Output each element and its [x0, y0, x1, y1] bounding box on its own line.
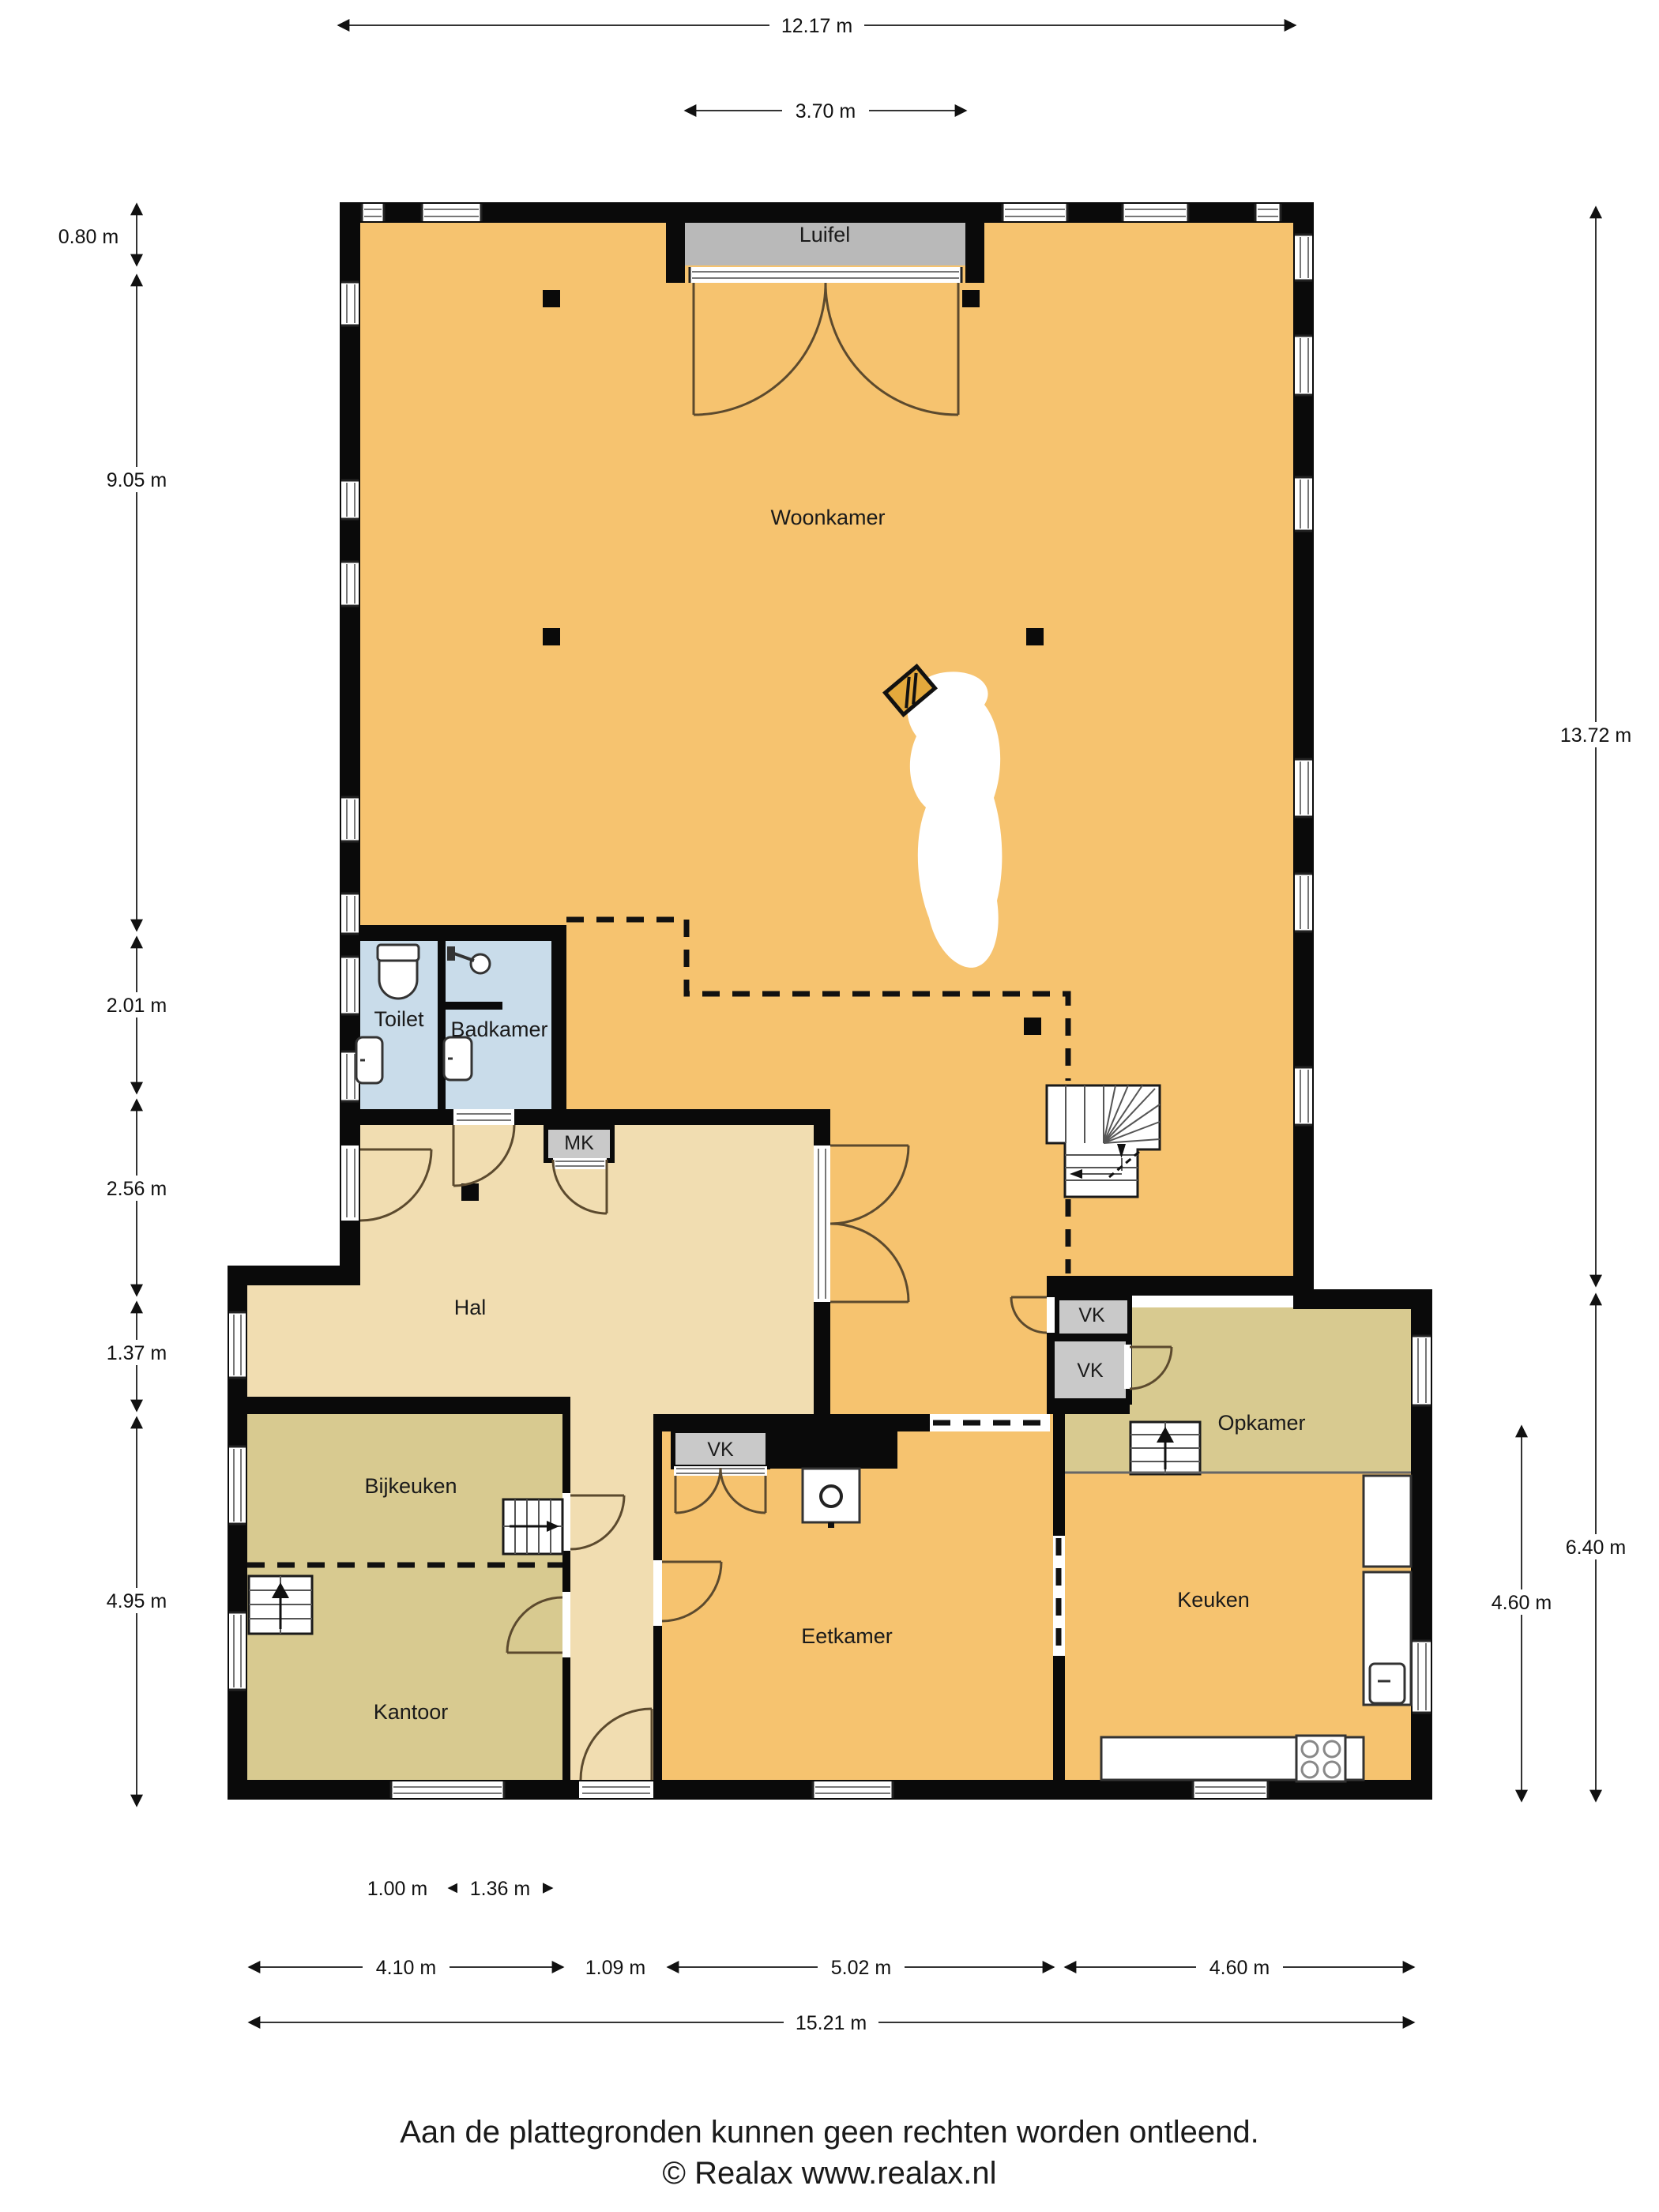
dim-bottom-410: 4.10 m — [376, 1957, 436, 1979]
vk-opkamer-label: VK — [1077, 1360, 1104, 1382]
dim-left-137: 1.37 m — [107, 1342, 167, 1364]
stove-fixture — [803, 1469, 860, 1528]
window — [341, 956, 359, 1015]
dim-left-256: 2.56 m — [107, 1178, 167, 1200]
bijkeuken-stair — [503, 1499, 562, 1554]
woonkamer-label: Woonkamer — [770, 506, 885, 529]
window — [1295, 234, 1312, 281]
toilet-fixture — [378, 945, 419, 999]
window — [341, 893, 359, 935]
pillar — [962, 290, 980, 307]
window — [229, 1612, 246, 1691]
dim-bottom-136: 1.36 m — [470, 1878, 530, 1900]
dim-bottom-502: 5.02 m — [831, 1957, 891, 1979]
opkamer-label: Opkamer — [1217, 1411, 1305, 1435]
dim-top-luifel: 3.70 m — [796, 100, 856, 122]
dim-right-640: 6.40 m — [1566, 1537, 1626, 1559]
window — [1002, 204, 1068, 221]
luifel-label: Luifel — [799, 223, 851, 246]
woonkamer-south-floor — [820, 1289, 1053, 1431]
pillar — [543, 628, 560, 645]
window — [1295, 335, 1312, 396]
window — [341, 480, 359, 520]
window — [229, 1311, 246, 1379]
bijkeuken-label: Bijkeuken — [364, 1474, 457, 1498]
dim-bottom-460: 4.60 m — [1209, 1957, 1270, 1979]
pillar — [1026, 628, 1044, 645]
hal-floor-west — [247, 1266, 360, 1414]
floorplan-page: Luifel Woonkamer Toilet Badkamer MK Hal … — [0, 0, 1659, 2212]
window — [812, 1781, 893, 1798]
dim-left-201: 2.01 m — [107, 995, 167, 1017]
window — [1192, 1781, 1269, 1798]
opkamer-stair — [1130, 1422, 1200, 1474]
window — [1122, 204, 1189, 221]
window — [390, 1781, 505, 1798]
vk-eetkamer-label: VK — [707, 1439, 734, 1461]
footer-copyright: © Realax www.realax.nl — [663, 2156, 997, 2191]
fireplace-block — [770, 1414, 897, 1469]
mk-label: MK — [564, 1132, 594, 1154]
window — [1295, 476, 1312, 532]
dim-bottom-total: 15.21 m — [796, 2012, 867, 2034]
keuken-label: Keuken — [1177, 1588, 1250, 1612]
window — [421, 204, 482, 221]
dim-right-1372: 13.72 m — [1560, 724, 1631, 747]
dim-top-total: 12.17 m — [781, 15, 852, 37]
toilet-label: Toilet — [374, 1007, 424, 1031]
sink — [356, 1037, 382, 1083]
dim-bottom-109: 1.09 m — [585, 1957, 645, 1979]
dim-left-495: 4.95 m — [107, 1590, 167, 1612]
footer-disclaimer: Aan de plattegronden kunnen geen rechten… — [400, 2115, 1259, 2150]
kantoor-label: Kantoor — [374, 1700, 449, 1724]
window — [361, 204, 385, 221]
badkamer-label: Badkamer — [450, 1018, 547, 1041]
vk-woonkamer-label: VK — [1078, 1304, 1105, 1326]
window — [1255, 204, 1281, 221]
window — [341, 561, 359, 607]
pillar — [543, 290, 560, 307]
window — [1295, 873, 1312, 932]
window — [1295, 758, 1312, 818]
window — [1413, 1335, 1431, 1406]
dim-left-905: 9.05 m — [107, 469, 167, 491]
window — [229, 1446, 246, 1525]
dim-bottom-100: 1.00 m — [367, 1878, 427, 1900]
window — [341, 796, 359, 842]
dim-left-080: 0.80 m — [58, 226, 118, 248]
hal-floor-strip — [562, 1414, 662, 1800]
footer: Aan de plattegronden kunnen geen rechten… — [400, 2115, 1259, 2191]
dim-right-460: 4.60 m — [1492, 1592, 1552, 1614]
room-fills — [247, 204, 1411, 1800]
floorplan-canvas: Luifel Woonkamer Toilet Badkamer MK Hal … — [0, 0, 1659, 2212]
eetkamer-label: Eetkamer — [801, 1624, 893, 1648]
window — [1295, 1066, 1312, 1126]
kitchen-sink — [1370, 1664, 1405, 1703]
window — [1413, 1640, 1431, 1714]
pillar — [1024, 1018, 1041, 1035]
window — [341, 281, 359, 326]
kantoor-stair — [249, 1576, 312, 1634]
hal-label: Hal — [454, 1296, 487, 1319]
